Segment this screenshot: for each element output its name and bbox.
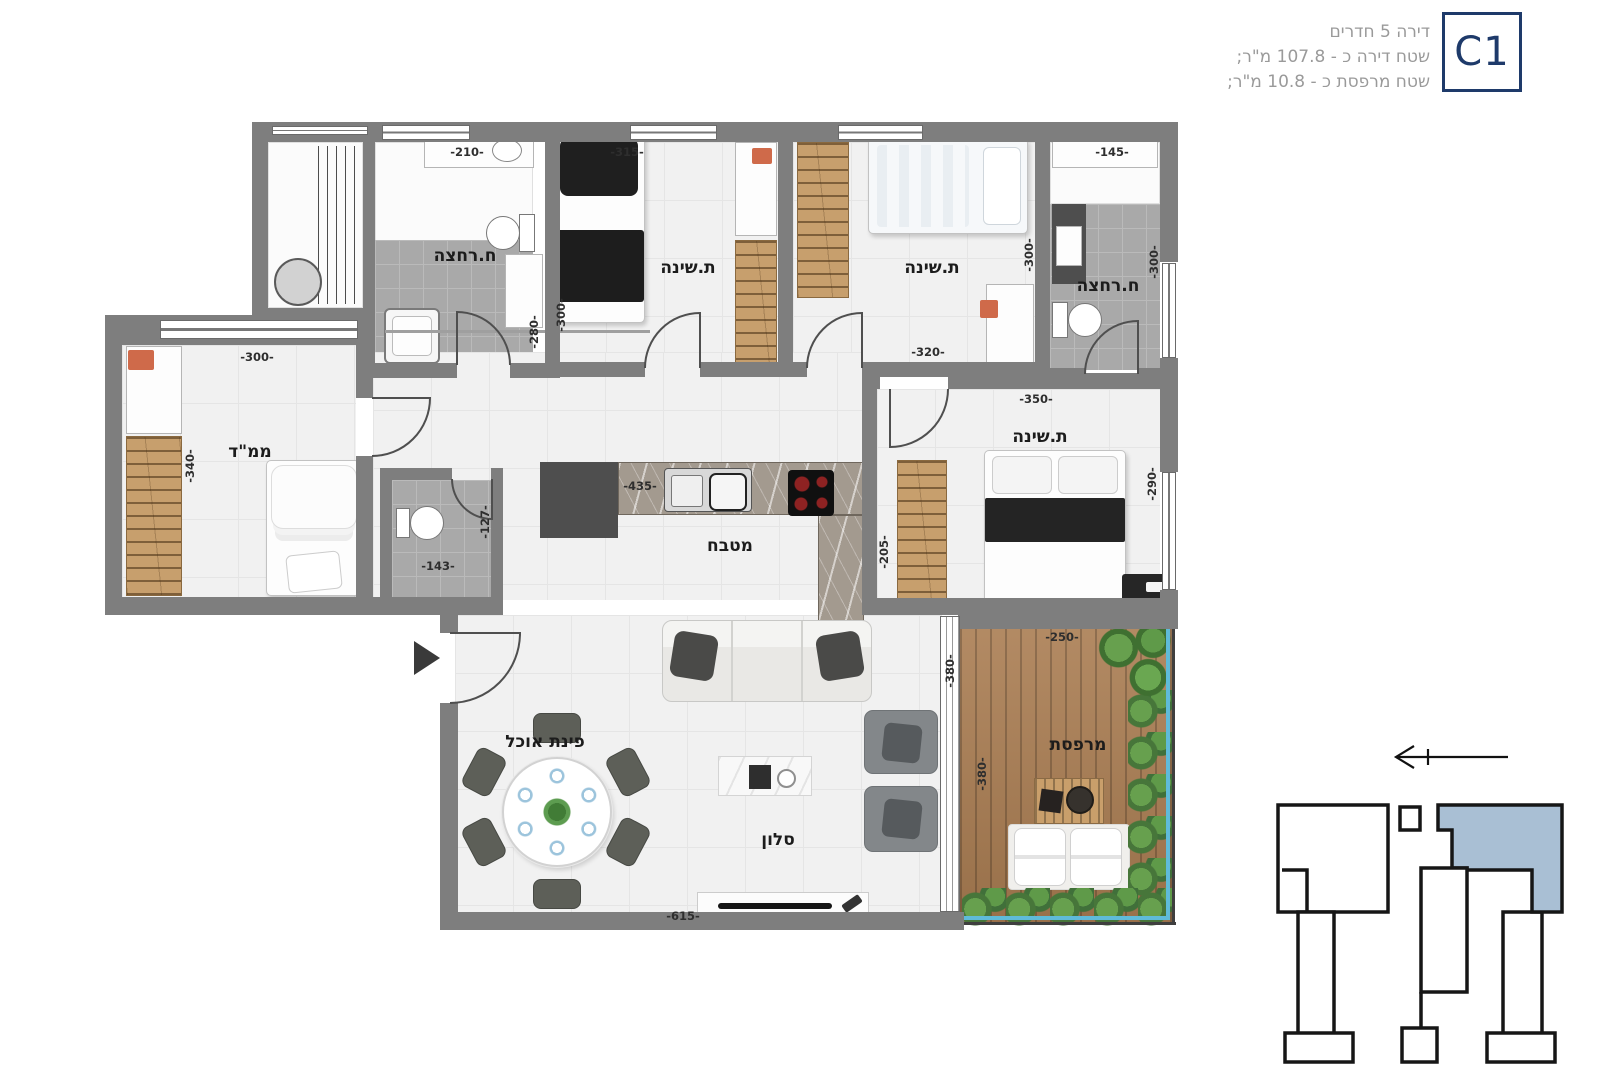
window <box>838 125 923 140</box>
toilet-tank <box>396 508 410 538</box>
railing-edge <box>1172 620 1175 924</box>
dimension-label: -143- <box>421 559 455 573</box>
window <box>382 125 470 140</box>
wall-segment <box>862 598 1178 615</box>
room-label: ת.שינה <box>660 258 715 278</box>
dimension-label: -615- <box>666 909 700 923</box>
dimension-label: -300- <box>554 298 568 332</box>
room-label: מטבח <box>707 536 753 556</box>
wall-segment <box>440 703 458 930</box>
desk-chair <box>980 300 998 318</box>
room-label: ח.רחצה <box>434 246 497 266</box>
dimension-label: -300- <box>1022 238 1036 272</box>
toilet-bowl <box>486 216 520 250</box>
toilet-tank <box>1052 302 1068 338</box>
bed <box>266 460 360 596</box>
glass-railing <box>1166 622 1170 920</box>
wall-segment <box>1035 142 1050 383</box>
toilet-bowl <box>1068 303 1102 337</box>
wall-segment <box>510 363 545 378</box>
keyplan-block <box>1487 1033 1555 1062</box>
boiler <box>274 258 322 306</box>
wall-segment <box>862 373 877 613</box>
dining-chair <box>533 879 581 909</box>
toilet-tank <box>519 214 535 252</box>
entrance-arrow-icon <box>414 641 440 675</box>
dimension-label: -210- <box>450 145 484 159</box>
wall-segment <box>363 142 375 378</box>
wardrobe <box>897 460 947 612</box>
drying-rack-hatch <box>318 146 362 304</box>
bed <box>868 138 1028 234</box>
room-label: מרפסת <box>1050 735 1107 755</box>
dimension-label: -315- <box>610 145 644 159</box>
dimension-label: -300- <box>1147 245 1161 279</box>
keyplan-block <box>1278 805 1388 912</box>
room-label: ח.רחצה <box>1077 276 1140 296</box>
window <box>630 125 717 140</box>
bed <box>553 133 645 323</box>
outdoor-decor <box>1039 789 1064 814</box>
desk-decor <box>128 350 154 370</box>
wall-segment <box>105 597 375 615</box>
wall-segment <box>778 142 793 377</box>
armchair <box>864 710 938 774</box>
dimension-label: -435- <box>623 479 657 493</box>
dimension-label: -380- <box>943 654 957 688</box>
dimension-label: -320- <box>911 345 945 359</box>
dimension-label: -250- <box>1045 630 1079 644</box>
kitchen-tall-cabinet <box>540 462 618 538</box>
sliding-window <box>160 320 358 339</box>
wall-segment <box>440 597 458 633</box>
keyplan-block <box>1285 1033 1353 1062</box>
wall-segment <box>356 456 373 597</box>
dimension-label: -145- <box>1095 145 1129 159</box>
toilet-bowl <box>410 506 444 540</box>
wall-segment <box>700 362 790 377</box>
bed-runner <box>985 498 1125 542</box>
kitchen-counter-return <box>818 515 864 632</box>
room-label: ת.שינה <box>904 258 959 278</box>
keyplan-block <box>1402 1028 1437 1062</box>
washbasin <box>492 139 522 162</box>
sofa <box>662 620 872 702</box>
tv <box>718 903 832 909</box>
dimension-label: -300- <box>240 350 274 364</box>
keyplan-block <box>1503 912 1542 1038</box>
room-label: סלון <box>761 830 795 850</box>
toilet-floor <box>392 480 491 598</box>
wall-segment <box>440 912 964 930</box>
pillow <box>1058 456 1118 494</box>
outdoor-tray <box>1066 786 1094 814</box>
dimension-label: -205- <box>877 535 891 569</box>
wall-segment <box>1160 122 1178 262</box>
glass-railing <box>962 916 1170 920</box>
wall-segment <box>545 142 560 378</box>
dimension-label: -290- <box>1145 467 1159 501</box>
coffee-table <box>718 756 812 796</box>
dining-table <box>502 757 612 867</box>
building-key-plan <box>1230 700 1600 1067</box>
keyplan-block <box>1400 807 1420 830</box>
dimension-label: -380- <box>975 757 989 791</box>
keyplan-block <box>1298 912 1334 1038</box>
dresser-decor <box>752 148 772 164</box>
window <box>1162 263 1176 358</box>
window <box>1162 472 1176 590</box>
wall-segment <box>373 363 457 378</box>
cooktop <box>788 470 834 516</box>
room-label: ת.שינה <box>1012 427 1067 447</box>
desk <box>986 284 1034 368</box>
wall-segment <box>373 597 503 615</box>
wall-segment <box>790 362 807 377</box>
railing-edge <box>960 922 1176 925</box>
wall-segment <box>252 122 268 318</box>
wall-segment <box>491 468 503 598</box>
wall-segment <box>380 468 392 598</box>
pergola-line <box>385 330 650 333</box>
wardrobe <box>126 436 182 596</box>
dimension-label: -350- <box>1019 392 1053 406</box>
wall-segment <box>1160 358 1178 472</box>
outdoor-seat <box>1070 828 1122 886</box>
shower-tray <box>384 308 440 364</box>
dimension-label: -280- <box>527 315 541 349</box>
armchair <box>864 786 938 852</box>
wall-segment <box>948 373 1160 389</box>
keyplan-block <box>1421 868 1467 992</box>
dimension-label: -127- <box>478 505 492 539</box>
wardrobe <box>735 240 777 376</box>
window <box>272 126 368 135</box>
wall-segment <box>958 615 1178 629</box>
wardrobe <box>797 142 849 298</box>
room-label: פינת אוכל <box>505 732 585 752</box>
outdoor-seat <box>1014 828 1066 886</box>
pillow <box>992 456 1052 494</box>
washbasin <box>1056 226 1082 266</box>
wall-segment <box>545 362 645 377</box>
dimension-label: -340- <box>183 449 197 483</box>
wall-segment <box>105 315 122 615</box>
planters <box>1094 622 1176 696</box>
room-label: ממ"ד <box>228 442 271 462</box>
kitchen-sink <box>664 468 752 512</box>
